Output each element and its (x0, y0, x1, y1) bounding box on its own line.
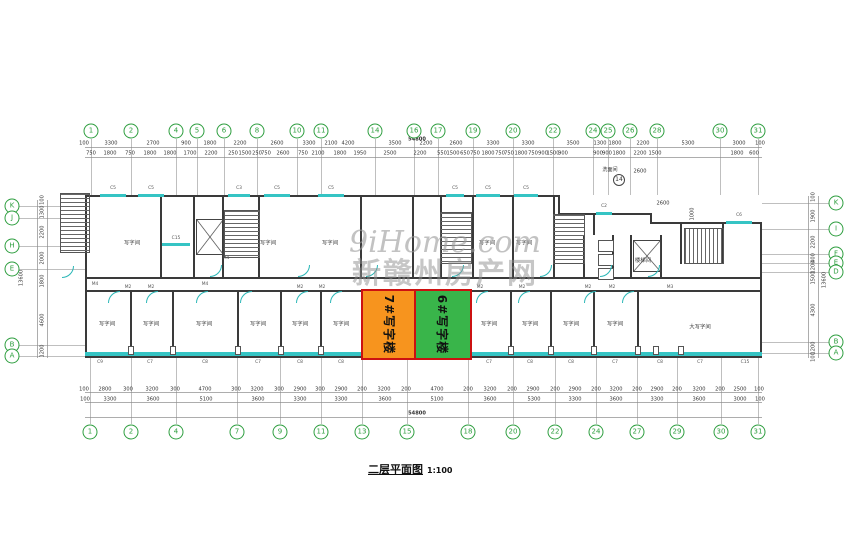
window-label: C7 (255, 360, 261, 365)
room-label: 写字间 (516, 238, 532, 246)
dim-top: 3300 (105, 140, 118, 146)
dim-bottom: 200 (672, 386, 682, 392)
highlight-block-label: 7#写字楼 (381, 295, 398, 354)
caption-title: 二层平面图 (368, 463, 423, 476)
grid-bubble-bottom-30: 30 (714, 425, 729, 440)
partition-bottom-zone (172, 292, 174, 354)
grid-leader (257, 139, 258, 195)
dim-top2: 2200 (414, 150, 427, 156)
room-label: 写字间 (522, 319, 538, 327)
floorplan-canvas: 9iHome.com 新赣州房产网 二层平面图1:100 54800 54800… (0, 0, 850, 550)
dim-top2: 1700 (184, 150, 197, 156)
dim-bottom: 4700 (431, 386, 444, 392)
window-label: C3 (236, 186, 242, 191)
dim-top2: 1800 (104, 150, 117, 156)
grid-leader (176, 139, 177, 195)
grid-leader (131, 139, 132, 195)
door-arc-top-room (210, 265, 222, 277)
grid-leader (657, 139, 658, 195)
partition-bottom-zone (510, 292, 512, 354)
dim-bottom: 2900 (527, 386, 540, 392)
room-label: 写字间 (481, 319, 497, 327)
right-total-dimension: 13600 (821, 272, 827, 288)
grid-bubble-bottom-18: 18 (461, 425, 476, 440)
room-label: 写字间 (479, 238, 495, 246)
grid-bubble-top-5: 5 (190, 124, 205, 139)
room-label: 写字间 (607, 319, 623, 327)
grid-bubble-top-19: 19 (466, 124, 481, 139)
drawing-caption: 二层平面图1:100 (368, 458, 452, 477)
plan-annotation: 2600 (657, 200, 670, 206)
wall-corridor-wall-top (85, 277, 760, 279)
dim-top2: 1800 (334, 150, 347, 156)
grid-leader (414, 139, 415, 195)
dim-bottom: 2900 (651, 386, 664, 392)
dim-left: 1300 (39, 206, 45, 219)
toilet-stall (598, 240, 614, 252)
dim-top2: 1800 (164, 150, 177, 156)
window-label: C8 (338, 360, 344, 365)
grid-leader (593, 139, 594, 195)
grid-bubble-bottom-24: 24 (589, 425, 604, 440)
door-arc-bottom-room (518, 291, 530, 303)
grid-leader (513, 139, 514, 195)
grid-bubble-top-25: 25 (601, 124, 616, 139)
dim-top2: 900 (602, 150, 612, 156)
dim-top: 3000 (733, 140, 746, 146)
dim-right: 100 (810, 352, 816, 362)
dim-top: 2200 (234, 140, 247, 146)
grid-leader (762, 353, 830, 354)
staircase-b (440, 212, 472, 264)
grid-bubble-top-8: 8 (250, 124, 265, 139)
right-dim-line (808, 196, 809, 358)
dim-top: 2200 (637, 140, 650, 146)
dim-bottom2: 3600 (610, 396, 623, 402)
dim-top: 1300 (594, 140, 607, 146)
door-arc-bottom-room (240, 291, 252, 303)
dim-bottom: 200 (632, 386, 642, 392)
grid-leader (762, 254, 830, 255)
dim-bottom: 200 (357, 386, 367, 392)
dim-top: 3300 (303, 140, 316, 146)
grid-bubble-bottom-1: 1 (83, 425, 98, 440)
dim-top: 900 (181, 140, 191, 146)
dim-top2: 2600 (277, 150, 290, 156)
dim-left: 4600 (39, 314, 45, 327)
grid-bubble-top-11: 11 (314, 124, 329, 139)
grid-bubble-top-10: 10 (290, 124, 305, 139)
dim-bottom2: 3300 (104, 396, 117, 402)
right-dim-line-2 (818, 196, 819, 358)
grid-bubble-top-16: 16 (407, 124, 422, 139)
column-marker (170, 346, 176, 355)
grid-bubble-top-4: 4 (169, 124, 184, 139)
window-label: C8 (297, 360, 303, 365)
door-label: M2 (319, 285, 326, 290)
grid-leader (758, 139, 759, 195)
door-label: M2 (519, 285, 526, 290)
highlight-block-7[interactable]: 7#写字楼 (361, 289, 418, 360)
window-label: C8 (527, 360, 533, 365)
window-label: C9 (97, 360, 103, 365)
bottom-total-dimension: 54800 (408, 410, 426, 416)
column-marker (678, 346, 684, 355)
dim-bottom2: 5100 (200, 396, 213, 402)
door-arc-top-room (648, 265, 660, 277)
bottom-dim-line-2 (85, 402, 762, 403)
dim-top: 1800 (204, 140, 217, 146)
grid-bubble-top-14: 14 (368, 124, 383, 139)
bottom-dim-line-1 (85, 392, 762, 393)
dim-top2: 2100 (312, 150, 325, 156)
dim-top2: 750 (261, 150, 271, 156)
door-label: M4 (92, 282, 99, 287)
room-label: 写字间 (250, 319, 266, 327)
door-arc-bottom-room (622, 291, 634, 303)
dim-bottom: 100 (754, 386, 764, 392)
dim-right: 1900 (810, 210, 816, 223)
grid-bubble-bottom-7: 7 (230, 425, 245, 440)
grid-bubble-top-30: 30 (713, 124, 728, 139)
dim-bottom: 3200 (378, 386, 391, 392)
dim-right: 2200 (810, 236, 816, 249)
grid-leader (762, 229, 830, 230)
grid-leader (762, 272, 830, 273)
grid-bubble-top-1: 1 (84, 124, 99, 139)
grid-bubble-left-J: J (5, 211, 20, 226)
dim-bottom: 300 (123, 386, 133, 392)
highlight-block-6[interactable]: 6#写字楼 (414, 289, 472, 360)
column-marker (591, 346, 597, 355)
grid-leader (224, 139, 225, 195)
grid-bubble-bottom-22: 22 (548, 425, 563, 440)
room-label: 楼梯间 (635, 256, 651, 264)
dim-top2: 1500 (239, 150, 252, 156)
grid-leader (197, 139, 198, 195)
grid-leader (375, 139, 376, 195)
partition-top-zone (680, 224, 682, 264)
highlight-block-label: 6#写字楼 (435, 295, 452, 354)
left-dim-line (37, 200, 38, 358)
window-bar-top (596, 212, 612, 215)
dim-top2: 750 (504, 150, 514, 156)
door-arc-bottom-room (296, 291, 308, 303)
dim-left: 2000 (39, 252, 45, 265)
window-bar-interior (162, 243, 190, 246)
dim-bottom: 2900 (335, 386, 348, 392)
top-dim-line-1 (85, 147, 762, 148)
grid-leader (473, 139, 474, 195)
grid-bubble-top-2: 2 (124, 124, 139, 139)
detail-bubble: 14 (613, 174, 625, 186)
grid-bubble-right-D: D (829, 265, 844, 280)
door-arc-bottom-room (108, 291, 120, 303)
dim-bottom: 3200 (693, 386, 706, 392)
door-label: M2 (125, 285, 132, 290)
dim-bottom2: 3600 (379, 396, 392, 402)
column-marker (653, 346, 659, 355)
wall-right-wall (760, 222, 762, 358)
dim-top2: 750 (125, 150, 135, 156)
room-label: 写字间 (99, 319, 115, 327)
dim-bottom2: 3600 (252, 396, 265, 402)
grid-leader (297, 139, 298, 195)
partition-bottom-zone (550, 292, 552, 354)
dim-right: 4300 (810, 304, 816, 317)
window-bar-top (138, 194, 164, 197)
door-arc-entry-left (62, 266, 74, 278)
dim-top2: 1800 (515, 150, 528, 156)
partition-bottom-zone (130, 292, 132, 354)
dim-bottom: 200 (591, 386, 601, 392)
room-label: 写字间 (124, 238, 140, 246)
dim-bottom: 2500 (734, 386, 747, 392)
grid-leader (762, 342, 830, 343)
partition-top-zone (630, 235, 632, 277)
grid-leader (19, 269, 85, 270)
grid-bubble-right-I: I (829, 222, 844, 237)
window-bar-top (446, 194, 464, 197)
dim-bottom: 3200 (251, 386, 264, 392)
dim-top2: 1800 (613, 150, 626, 156)
window-label: C6 (736, 213, 742, 218)
partition-top-zone (512, 197, 514, 277)
grid-bubble-top-28: 28 (650, 124, 665, 139)
grid-leader (762, 203, 830, 204)
room-label: 写字间 (143, 319, 159, 327)
dim-bottom2: 100 (755, 396, 765, 402)
door-label: M2 (477, 285, 484, 290)
window-label: C5 (110, 186, 116, 191)
dim-top: 3300 (487, 140, 500, 146)
dim-bottom: 2900 (294, 386, 307, 392)
door-label: M2 (585, 285, 592, 290)
dim-top2: 1950 (354, 150, 367, 156)
grid-leader (321, 139, 322, 195)
partition-top-zone (193, 197, 195, 277)
dim-bottom2: 3300 (651, 396, 664, 402)
column-marker (635, 346, 641, 355)
window-label: C8 (657, 360, 663, 365)
dim-top2: 600 (749, 150, 759, 156)
wall-top-step (558, 195, 560, 215)
dim-top2: 750 (528, 150, 538, 156)
dim-top: 4200 (342, 140, 355, 146)
column-marker (508, 346, 514, 355)
dim-bottom2: 5100 (431, 396, 444, 402)
dim-top: 3500 (389, 140, 402, 146)
grid-bubble-top-31: 31 (751, 124, 766, 139)
dim-top: 1800 (609, 140, 622, 146)
dim-bottom: 300 (170, 386, 180, 392)
window-label: C7 (612, 360, 618, 365)
grid-bubble-bottom-13: 13 (355, 425, 370, 440)
dim-bottom: 200 (715, 386, 725, 392)
caption-scale: 1:100 (427, 466, 452, 475)
grid-bubble-bottom-29: 29 (670, 425, 685, 440)
partition-top-zone (360, 197, 362, 277)
partition-top-zone (160, 197, 162, 277)
dim-bottom2: 3000 (734, 396, 747, 402)
partition-bottom-zone (237, 292, 239, 354)
dim-top: 5300 (682, 140, 695, 146)
grid-leader (90, 358, 91, 424)
window-bar-top (264, 194, 290, 197)
dim-bottom: 200 (401, 386, 411, 392)
dim-top2: 900 (558, 150, 568, 156)
dim-top2: 650 (460, 150, 470, 156)
grid-leader (762, 263, 830, 264)
column-marker (318, 346, 324, 355)
window-label: C7 (697, 360, 703, 365)
wall-small-room-left (593, 213, 595, 235)
door-arc-top-room (540, 265, 552, 277)
dim-top: 2600 (450, 140, 463, 146)
grid-bubble-bottom-2: 2 (124, 425, 139, 440)
column-marker (128, 346, 134, 355)
grid-leader (19, 345, 85, 346)
dim-bottom: 3200 (610, 386, 623, 392)
bottom-total-line (85, 417, 762, 418)
grid-bubble-top-6: 6 (217, 124, 232, 139)
room-label: 写字间 (292, 319, 308, 327)
door-arc-top-room (366, 265, 378, 277)
dim-left: 1800 (39, 275, 45, 288)
grid-bubble-left-H: H (5, 239, 20, 254)
window-label: C7 (486, 360, 492, 365)
dim-bottom: 200 (463, 386, 473, 392)
grid-bubble-right-K: K (829, 196, 844, 211)
window-label: C5 (485, 186, 491, 191)
column-marker (548, 346, 554, 355)
room-label: 写字间 (322, 238, 338, 246)
grid-bubble-top-22: 22 (546, 124, 561, 139)
door-label: M3 (667, 285, 674, 290)
dim-bottom: 2800 (99, 386, 112, 392)
window-label: C5 (452, 186, 458, 191)
door-arc-bottom-room (146, 291, 158, 303)
plan-annotation: 洗面间 (602, 165, 617, 173)
room-label: 写字间 (333, 319, 349, 327)
window-bar-top (476, 194, 500, 197)
window-label: C5 (148, 186, 154, 191)
dim-left: 100 (39, 195, 45, 205)
dim-top2: 750 (470, 150, 480, 156)
partition-top-zone (412, 197, 414, 277)
dim-bottom2: 3600 (147, 396, 160, 402)
grid-leader (553, 139, 554, 195)
door-arc-bottom-room (476, 291, 488, 303)
window-bar-top (228, 194, 250, 197)
dim-top2: 1500 (649, 150, 662, 156)
dim-bottom2: 3600 (693, 396, 706, 402)
grid-bubble-bottom-27: 27 (630, 425, 645, 440)
window-label: C8 (568, 360, 574, 365)
window-label: C8 (202, 360, 208, 365)
dim-bottom2: 3300 (294, 396, 307, 402)
door-arc-bottom-room (196, 291, 208, 303)
door-label: M4 (202, 282, 209, 287)
plan-annotation: 2600 (634, 168, 647, 174)
dim-bottom: 300 (274, 386, 284, 392)
dim-top: 100 (755, 140, 765, 146)
partition-top-zone (472, 197, 474, 277)
grid-leader (19, 356, 85, 357)
dim-top2: 2200 (634, 150, 647, 156)
window-label: C5 (274, 186, 280, 191)
door-arc-bottom-room (330, 291, 342, 303)
dim-right: 1500 (810, 272, 816, 285)
grid-bubble-top-20: 20 (506, 124, 521, 139)
dim-top2: 250 (228, 150, 238, 156)
dim-bottom: 100 (79, 386, 89, 392)
dim-bottom: 3200 (146, 386, 159, 392)
partition-bottom-zone (637, 292, 639, 354)
column-marker (235, 346, 241, 355)
window-label: C15 (741, 360, 750, 365)
dim-top: 2100 (325, 140, 338, 146)
room-label: 大写字间 (689, 322, 711, 330)
dim-right: 100 (810, 192, 816, 202)
room-label: 写字间 (196, 319, 212, 327)
door-arc-bottom-room (584, 291, 596, 303)
dim-bottom2: 3300 (569, 396, 582, 402)
dim-bottom: 2900 (569, 386, 582, 392)
partition-bottom-zone (280, 292, 282, 354)
window-label: C15 (172, 236, 181, 241)
dim-left: 2200 (39, 226, 45, 239)
partition-bottom-zone (320, 292, 322, 354)
staircase-a (224, 210, 260, 258)
dim-bottom: 300 (231, 386, 241, 392)
dim-top2: 750 (298, 150, 308, 156)
dim-bottom: 300 (315, 386, 325, 392)
window-label: C5 (328, 186, 334, 191)
plan-annotation: 1000 (689, 208, 695, 221)
dim-top2: 1800 (731, 150, 744, 156)
grid-bubble-top-24: 24 (586, 124, 601, 139)
window-bar-top (100, 194, 126, 197)
dim-bottom: 200 (507, 386, 517, 392)
dim-top: 3300 (522, 140, 535, 146)
left-total-dimension: 13600 (18, 270, 24, 286)
grid-leader (91, 139, 92, 195)
grid-bubble-left-A: A (5, 349, 20, 364)
window-bar-top (318, 194, 344, 197)
grid-bubble-bottom-31: 31 (751, 425, 766, 440)
window-label: C2 (601, 204, 607, 209)
door-label: M2 (148, 285, 155, 290)
staircase-left-outside (60, 193, 90, 253)
dim-bottom2: 3300 (335, 396, 348, 402)
dim-bottom: 200 (550, 386, 560, 392)
dim-top: 2700 (147, 140, 160, 146)
grid-bubble-bottom-9: 9 (273, 425, 288, 440)
dim-top: 2600 (271, 140, 284, 146)
room-label: 写字间 (260, 238, 276, 246)
dim-top2: 1500 (447, 150, 460, 156)
staircase-right (684, 228, 724, 264)
window-label: C7 (147, 360, 153, 365)
door-arc-top-room (298, 265, 310, 277)
grid-leader (630, 139, 631, 195)
dim-bottom2: 5300 (528, 396, 541, 402)
dim-bottom2: 3600 (484, 396, 497, 402)
grid-bubble-top-26: 26 (623, 124, 638, 139)
grid-leader (720, 139, 721, 195)
window-bar-top (726, 221, 752, 224)
